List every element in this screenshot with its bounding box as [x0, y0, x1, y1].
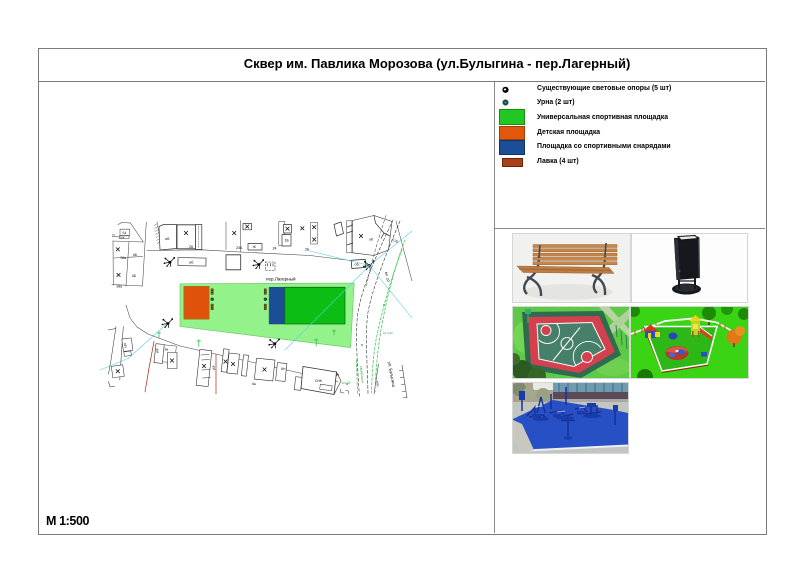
svg-text:23А: 23А: [236, 246, 243, 250]
svg-text:КЖ: КЖ: [121, 236, 126, 239]
svg-text:9а: 9а: [165, 348, 169, 352]
svg-text:1Б: 1Б: [285, 239, 290, 243]
svg-text:6Б: 6Б: [132, 274, 137, 278]
svg-text:20: 20: [189, 245, 193, 249]
svg-text:пер.Лагерный: пер.Лагерный: [266, 277, 296, 282]
svg-text:0,20: 0,20: [392, 237, 400, 244]
svg-text:58а: 58а: [117, 285, 123, 289]
svg-text:6Б: 6Б: [133, 253, 138, 257]
svg-text:24: 24: [273, 247, 277, 251]
svg-text:КН: КН: [211, 365, 216, 371]
svg-text:вл. 22: вл. 22: [384, 271, 390, 282]
svg-text:КН: КН: [281, 367, 286, 371]
svg-text:26: 26: [305, 248, 309, 252]
svg-text:об: об: [369, 238, 373, 242]
svg-text:пос.: пос.: [375, 380, 380, 387]
svg-text:св/абонент: св/абонент: [359, 366, 365, 384]
svg-text:об.: об.: [189, 261, 194, 265]
svg-text:СНК: СНК: [315, 379, 322, 383]
svg-text:54: 54: [123, 231, 127, 235]
svg-text:ул. Булыгина: ул. Булыгина: [387, 361, 396, 388]
svg-text:вл.0,20: вл.0,20: [383, 331, 393, 335]
svg-text:об.: об.: [165, 237, 170, 241]
svg-text:Ж: Ж: [336, 373, 340, 377]
svg-text:9а: 9а: [252, 382, 256, 386]
svg-text:56а: 56а: [121, 256, 127, 260]
